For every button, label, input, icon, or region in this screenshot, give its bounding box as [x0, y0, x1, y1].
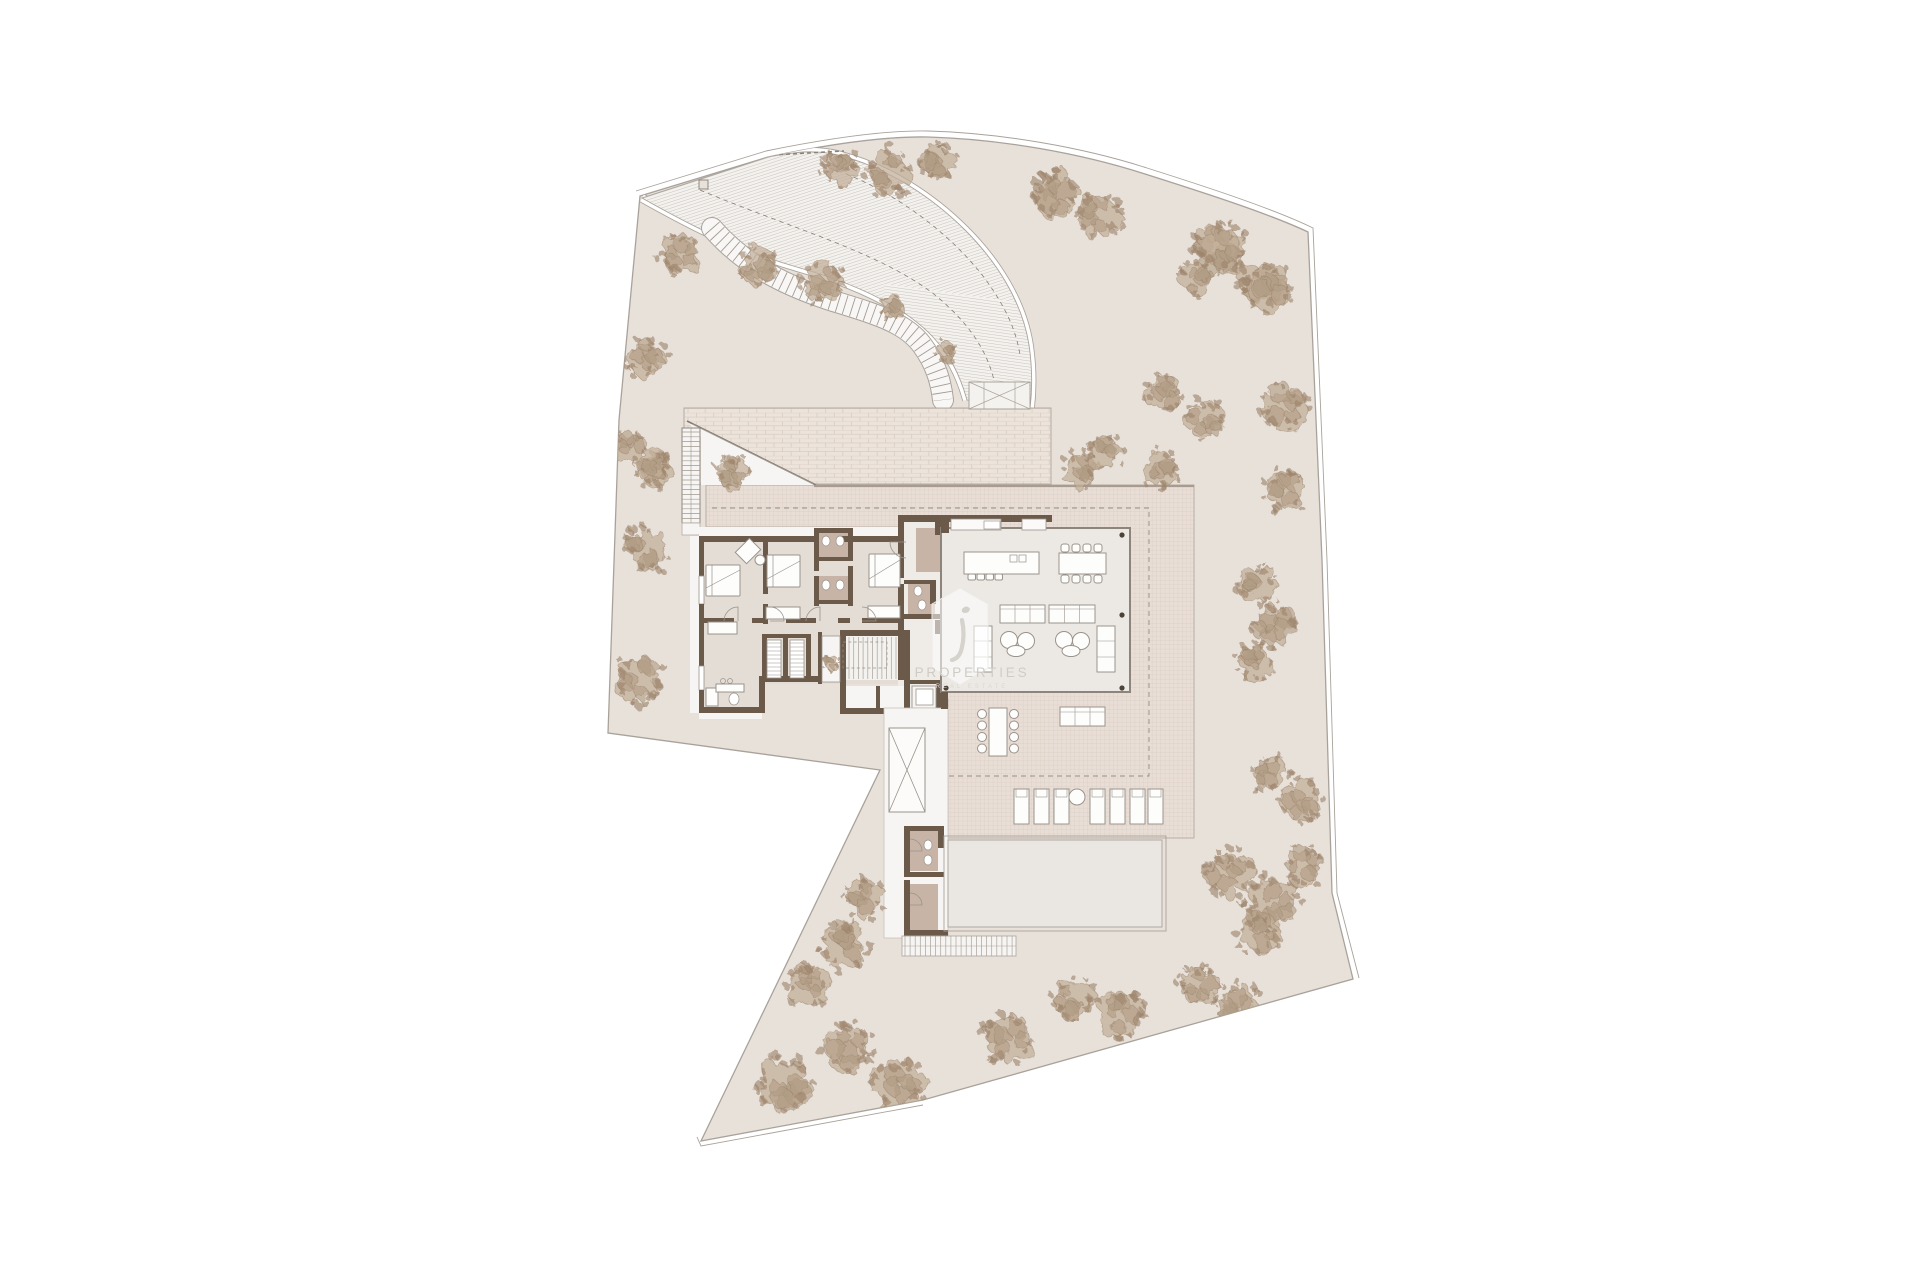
svg-text:PROPERTIES: PROPERTIES: [915, 665, 1030, 680]
svg-text:REAL ESTATE: REAL ESTATE: [936, 684, 1009, 690]
